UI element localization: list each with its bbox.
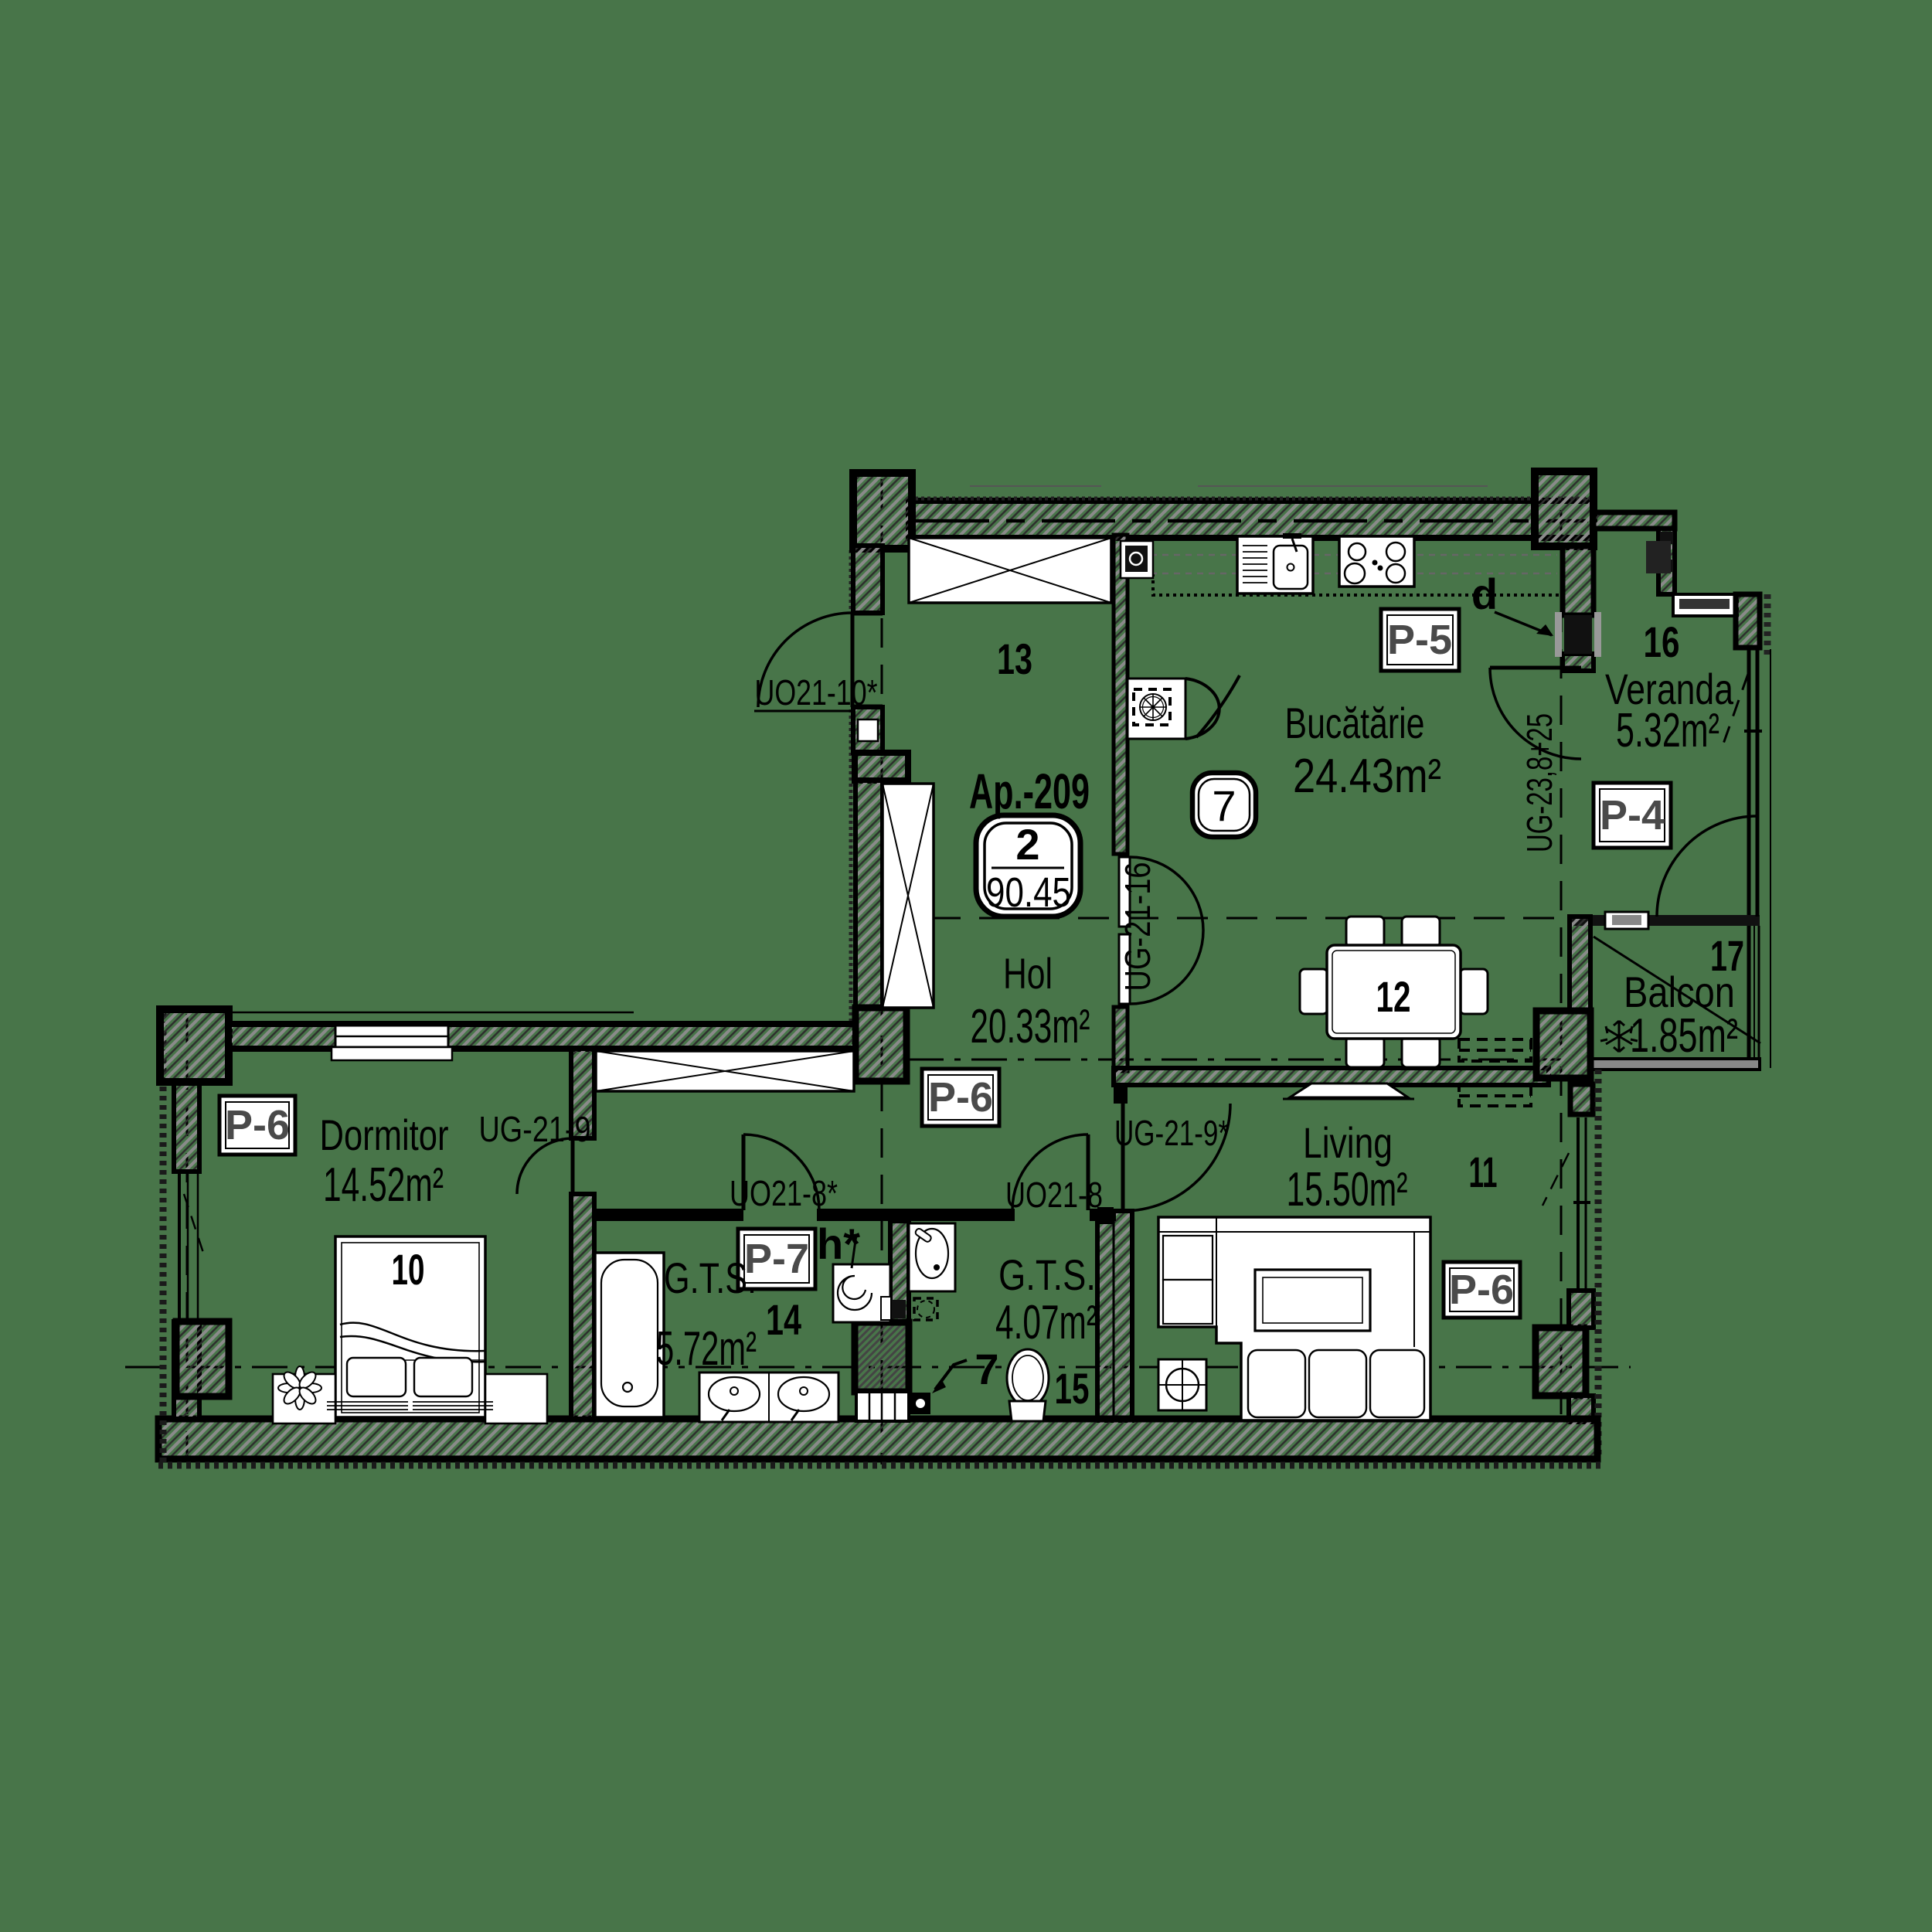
svg-text:2: 2 [1015,820,1039,869]
svg-text:Hol: Hol [1003,949,1053,998]
svg-text:UG-23,8+25: UG-23,8+25 [1519,713,1560,852]
svg-text:1.85m²: 1.85m² [1630,1009,1738,1063]
svg-text:UG-21-9*: UG-21-9* [1114,1113,1229,1153]
svg-text:10: 10 [392,1245,425,1294]
svg-text:13: 13 [997,634,1032,683]
svg-text:20.33m²: 20.33m² [971,1000,1090,1053]
svg-text:Living: Living [1303,1118,1393,1167]
svg-text:Ap.-209: Ap.-209 [969,764,1090,819]
svg-text:11: 11 [1469,1148,1498,1196]
svg-text:7: 7 [975,1345,998,1393]
svg-text:P-6: P-6 [1449,1267,1514,1313]
svg-text:P-6: P-6 [225,1102,290,1148]
svg-text:15.50m²: 15.50m² [1287,1163,1408,1216]
svg-text:12: 12 [1376,972,1411,1021]
svg-text:15: 15 [1055,1364,1090,1413]
svg-text:UO21-8: UO21-8 [1005,1175,1103,1215]
svg-text:90.45: 90.45 [986,869,1071,916]
svg-text:P-6: P-6 [928,1074,993,1121]
svg-text:16: 16 [1644,617,1680,666]
svg-text:UG-21-9: UG-21-9 [479,1109,591,1149]
svg-text:24.43m²: 24.43m² [1293,750,1441,803]
svg-text:d: d [1471,570,1498,618]
svg-text:G.T.S.: G.T.S. [664,1253,757,1302]
svg-text:7: 7 [1212,781,1236,830]
svg-text:4.07m²: 4.07m² [995,1296,1097,1349]
svg-text:5.72m²: 5.72m² [656,1322,757,1376]
svg-text:Bucătărie: Bucătărie [1285,699,1425,747]
svg-text:5.32m²: 5.32m² [1616,704,1719,757]
svg-text:P-5: P-5 [1387,617,1452,663]
svg-text:Dormitor: Dormitor [320,1111,449,1159]
svg-text:UO21-8*: UO21-8* [730,1173,838,1213]
svg-text:P-4: P-4 [1600,792,1665,838]
svg-text:UO21-10*: UO21-10* [755,672,878,713]
svg-text:UG-21-16: UG-21-16 [1117,862,1158,992]
svg-text:14: 14 [766,1295,801,1344]
svg-text:14.52m²: 14.52m² [323,1158,444,1212]
svg-text:17: 17 [1710,931,1744,980]
svg-text:G.T.S.: G.T.S. [998,1250,1096,1299]
